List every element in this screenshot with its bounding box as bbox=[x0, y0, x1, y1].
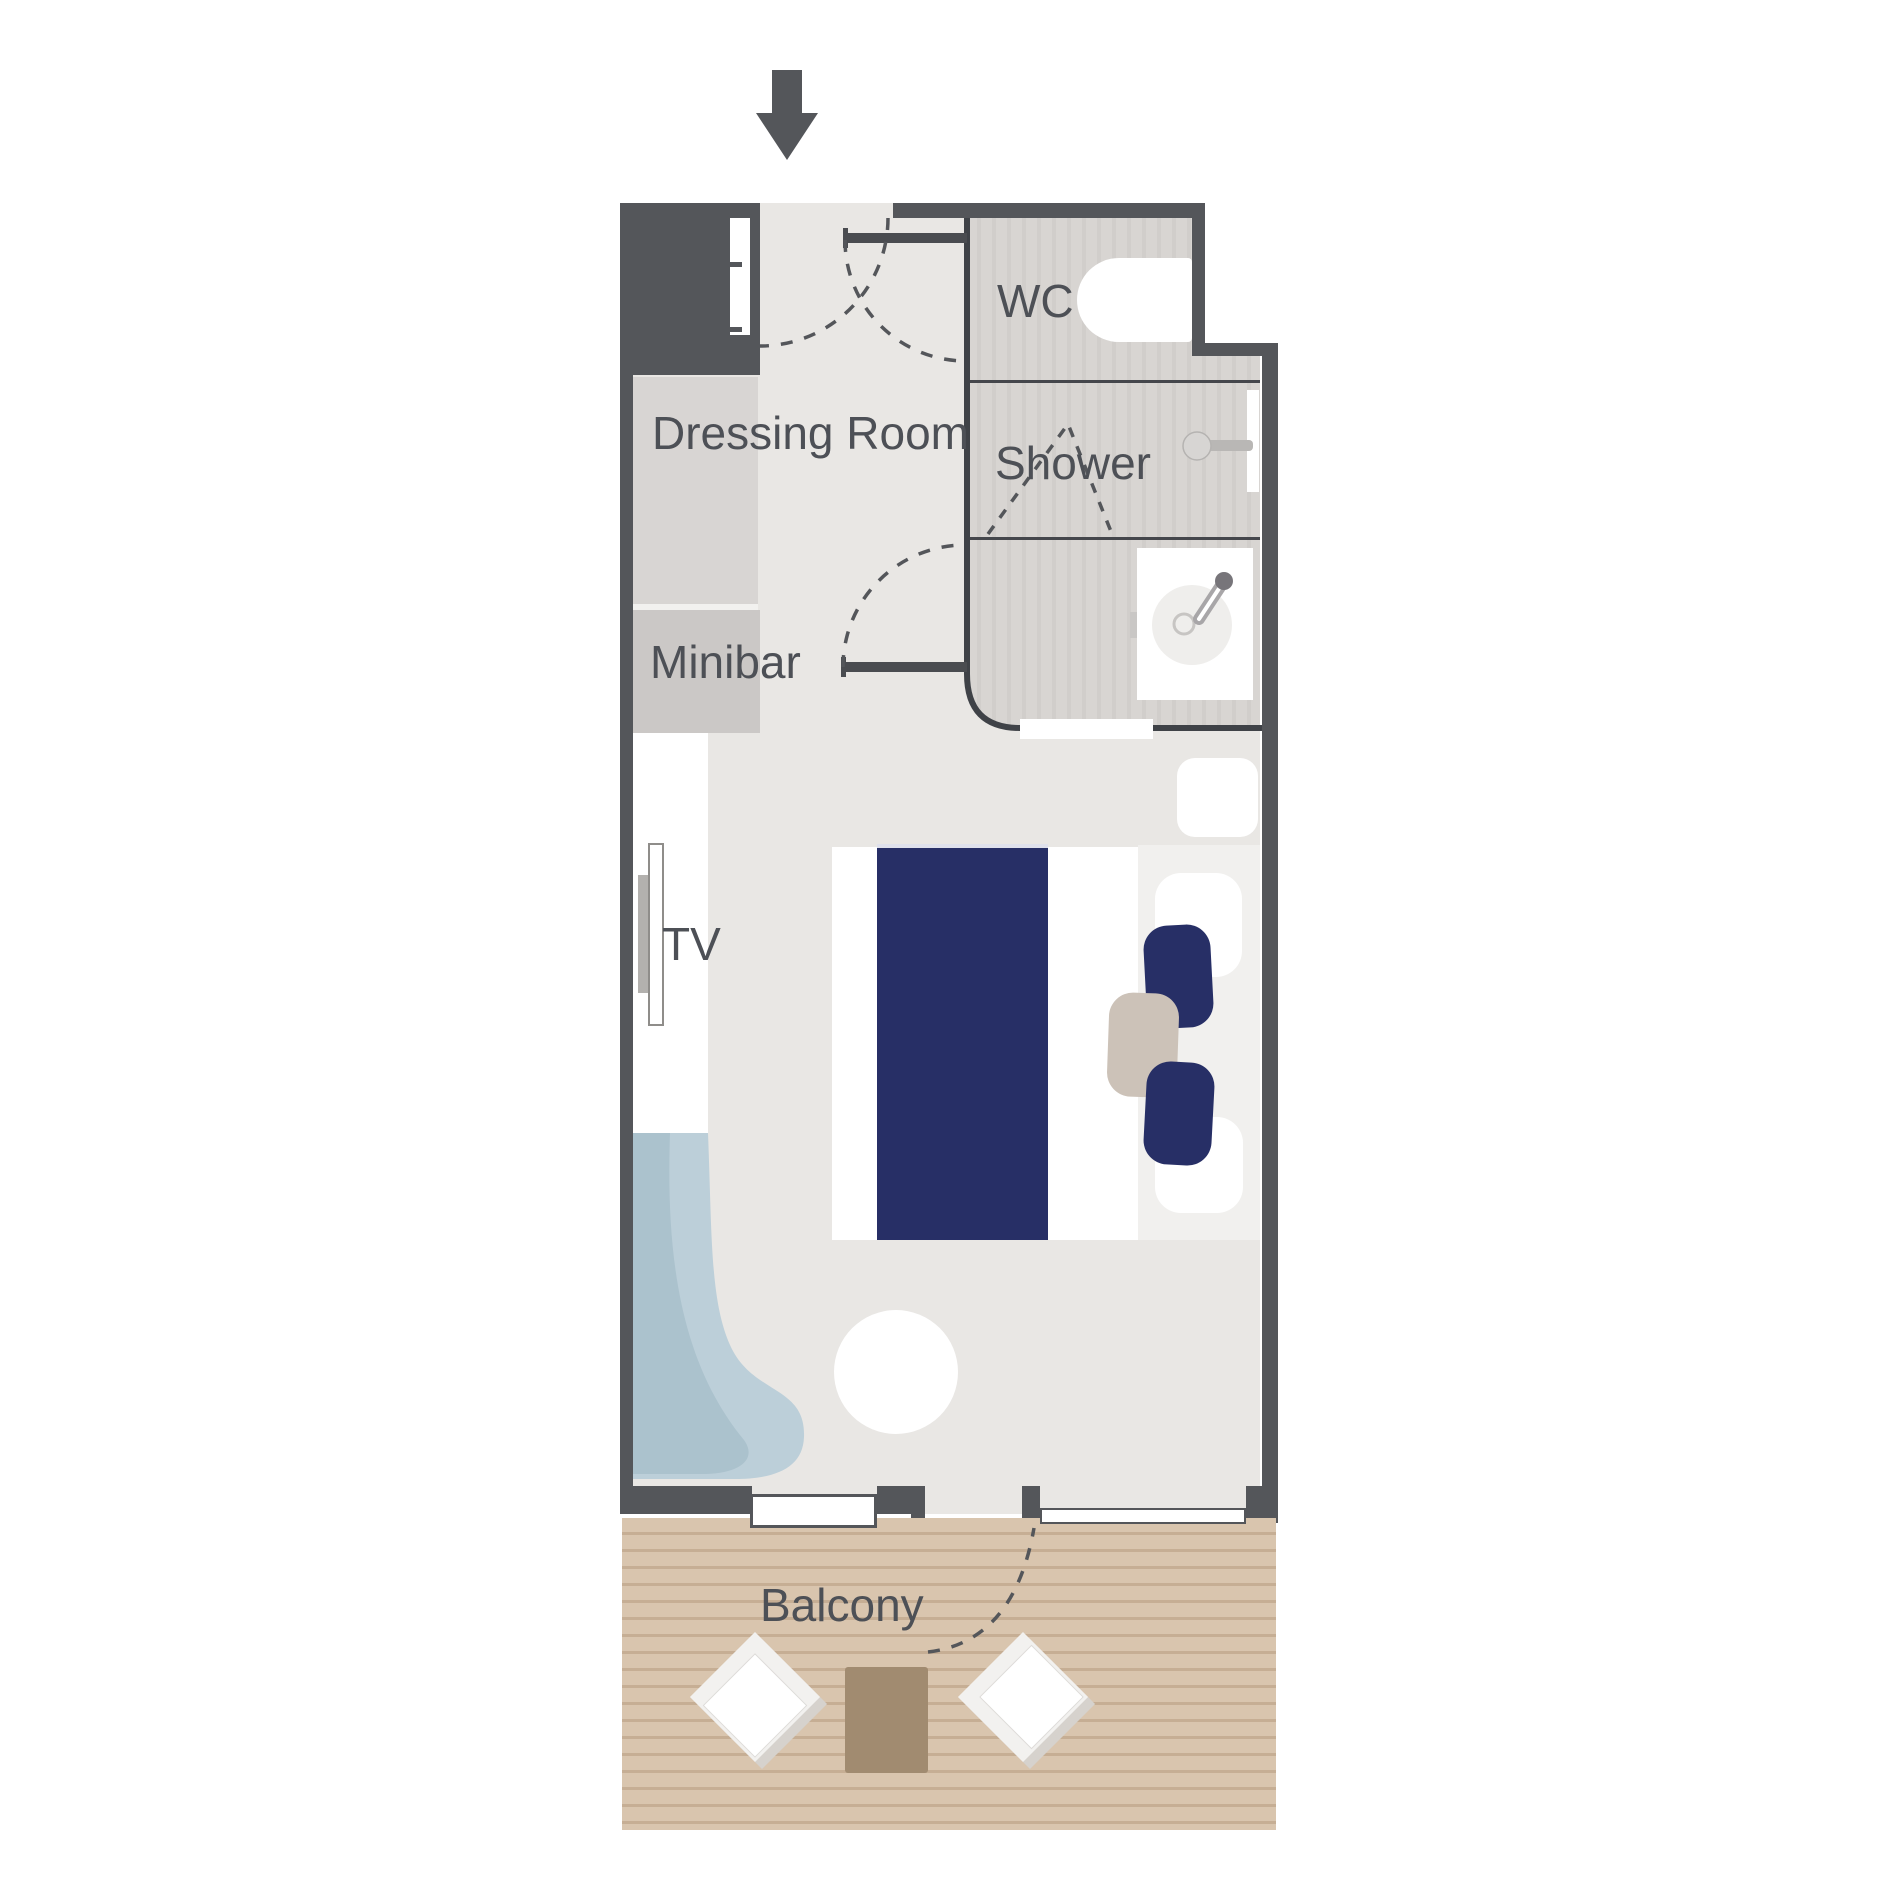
wall-top-right bbox=[893, 203, 1205, 218]
minibar-label: Minibar bbox=[650, 636, 801, 688]
nightstand bbox=[1177, 758, 1258, 837]
niche-shelf-tick-2 bbox=[724, 327, 742, 332]
wc-label: WC bbox=[997, 275, 1074, 327]
floor-plan-canvas: Dressing Room WC Shower Minibar TV Balco… bbox=[0, 0, 1900, 1900]
balcony-window-right bbox=[1040, 1508, 1246, 1524]
balcony-window-left bbox=[750, 1494, 877, 1528]
bathroom-door-threshold bbox=[1020, 719, 1153, 739]
niche-shelf-tick-1 bbox=[724, 262, 742, 267]
wall-right bbox=[1262, 343, 1278, 1523]
shower-label: Shower bbox=[995, 437, 1151, 489]
balcony-table bbox=[845, 1667, 928, 1773]
wall-bottom-left bbox=[620, 1486, 752, 1514]
wc-shower-divider-wall bbox=[966, 380, 1260, 383]
armchair-bottom-cushion bbox=[1142, 1060, 1215, 1166]
tv-bracket bbox=[638, 875, 648, 993]
luggage-niche bbox=[730, 218, 750, 335]
wall-left bbox=[620, 203, 633, 1514]
shower-glass-panel bbox=[1247, 390, 1259, 492]
wall-wc-right bbox=[1192, 203, 1205, 356]
tv-label: TV bbox=[662, 918, 721, 970]
dressing-room-label: Dressing Room bbox=[652, 407, 969, 459]
wall-bottom-mid bbox=[877, 1486, 925, 1514]
shower-vanity-divider-wall bbox=[966, 537, 1260, 540]
toilet bbox=[1077, 258, 1192, 342]
balcony-label: Balcony bbox=[760, 1579, 924, 1631]
entrance-arrow-icon bbox=[756, 70, 818, 160]
floor-entrance-gap bbox=[760, 203, 893, 220]
round-table bbox=[834, 1310, 958, 1434]
washbasin-counter bbox=[1137, 548, 1253, 700]
bed-duvet bbox=[877, 848, 1048, 1240]
